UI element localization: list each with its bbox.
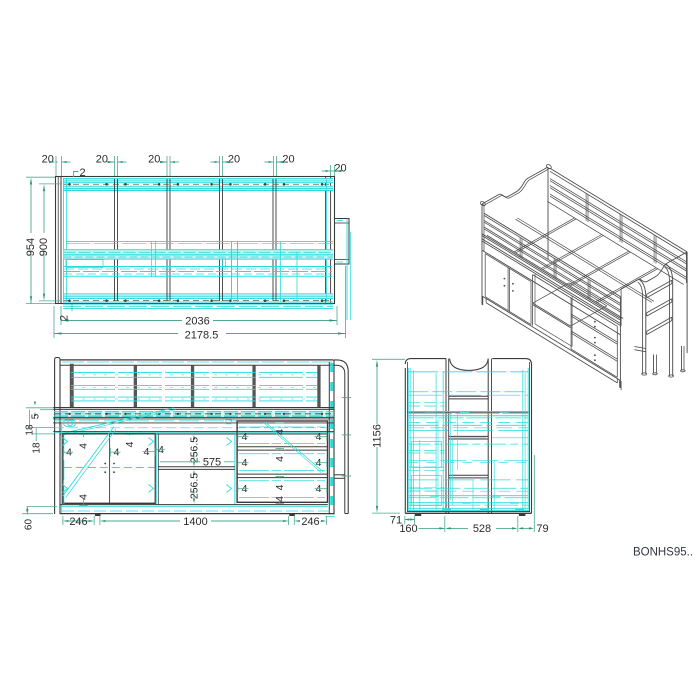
svg-text:20: 20 — [282, 154, 294, 166]
svg-text:4: 4 — [124, 441, 136, 447]
svg-text:2036: 2036 — [185, 316, 209, 328]
svg-text:246: 246 — [69, 516, 87, 528]
svg-text:4: 4 — [78, 443, 90, 449]
svg-text:2: 2 — [79, 167, 85, 179]
svg-text:79: 79 — [536, 523, 548, 535]
svg-text:2178.5: 2178.5 — [185, 330, 219, 342]
svg-text:20: 20 — [334, 163, 346, 175]
svg-text:256.5: 256.5 — [189, 437, 201, 463]
svg-text:5: 5 — [31, 413, 42, 419]
svg-text:4: 4 — [274, 429, 286, 435]
svg-text:246: 246 — [301, 516, 319, 528]
svg-text:60: 60 — [24, 519, 35, 531]
svg-text:2: 2 — [59, 315, 71, 321]
svg-text:528: 528 — [473, 523, 491, 535]
svg-text:18: 18 — [32, 442, 43, 454]
svg-text:20: 20 — [228, 154, 240, 166]
svg-text:1156: 1156 — [372, 424, 384, 448]
svg-text:20: 20 — [42, 154, 54, 166]
svg-text:575: 575 — [203, 456, 221, 468]
svg-text:160: 160 — [399, 523, 417, 535]
svg-text:20: 20 — [148, 154, 160, 166]
svg-text:954: 954 — [25, 238, 37, 256]
svg-text:4: 4 — [274, 484, 286, 490]
svg-text:20: 20 — [96, 154, 108, 166]
svg-text:900: 900 — [38, 238, 50, 256]
svg-text:1400: 1400 — [183, 516, 207, 528]
svg-text:256.5: 256.5 — [189, 473, 201, 499]
svg-text:4: 4 — [274, 456, 286, 462]
svg-text:BONHS95..: BONHS95.. — [633, 547, 693, 559]
